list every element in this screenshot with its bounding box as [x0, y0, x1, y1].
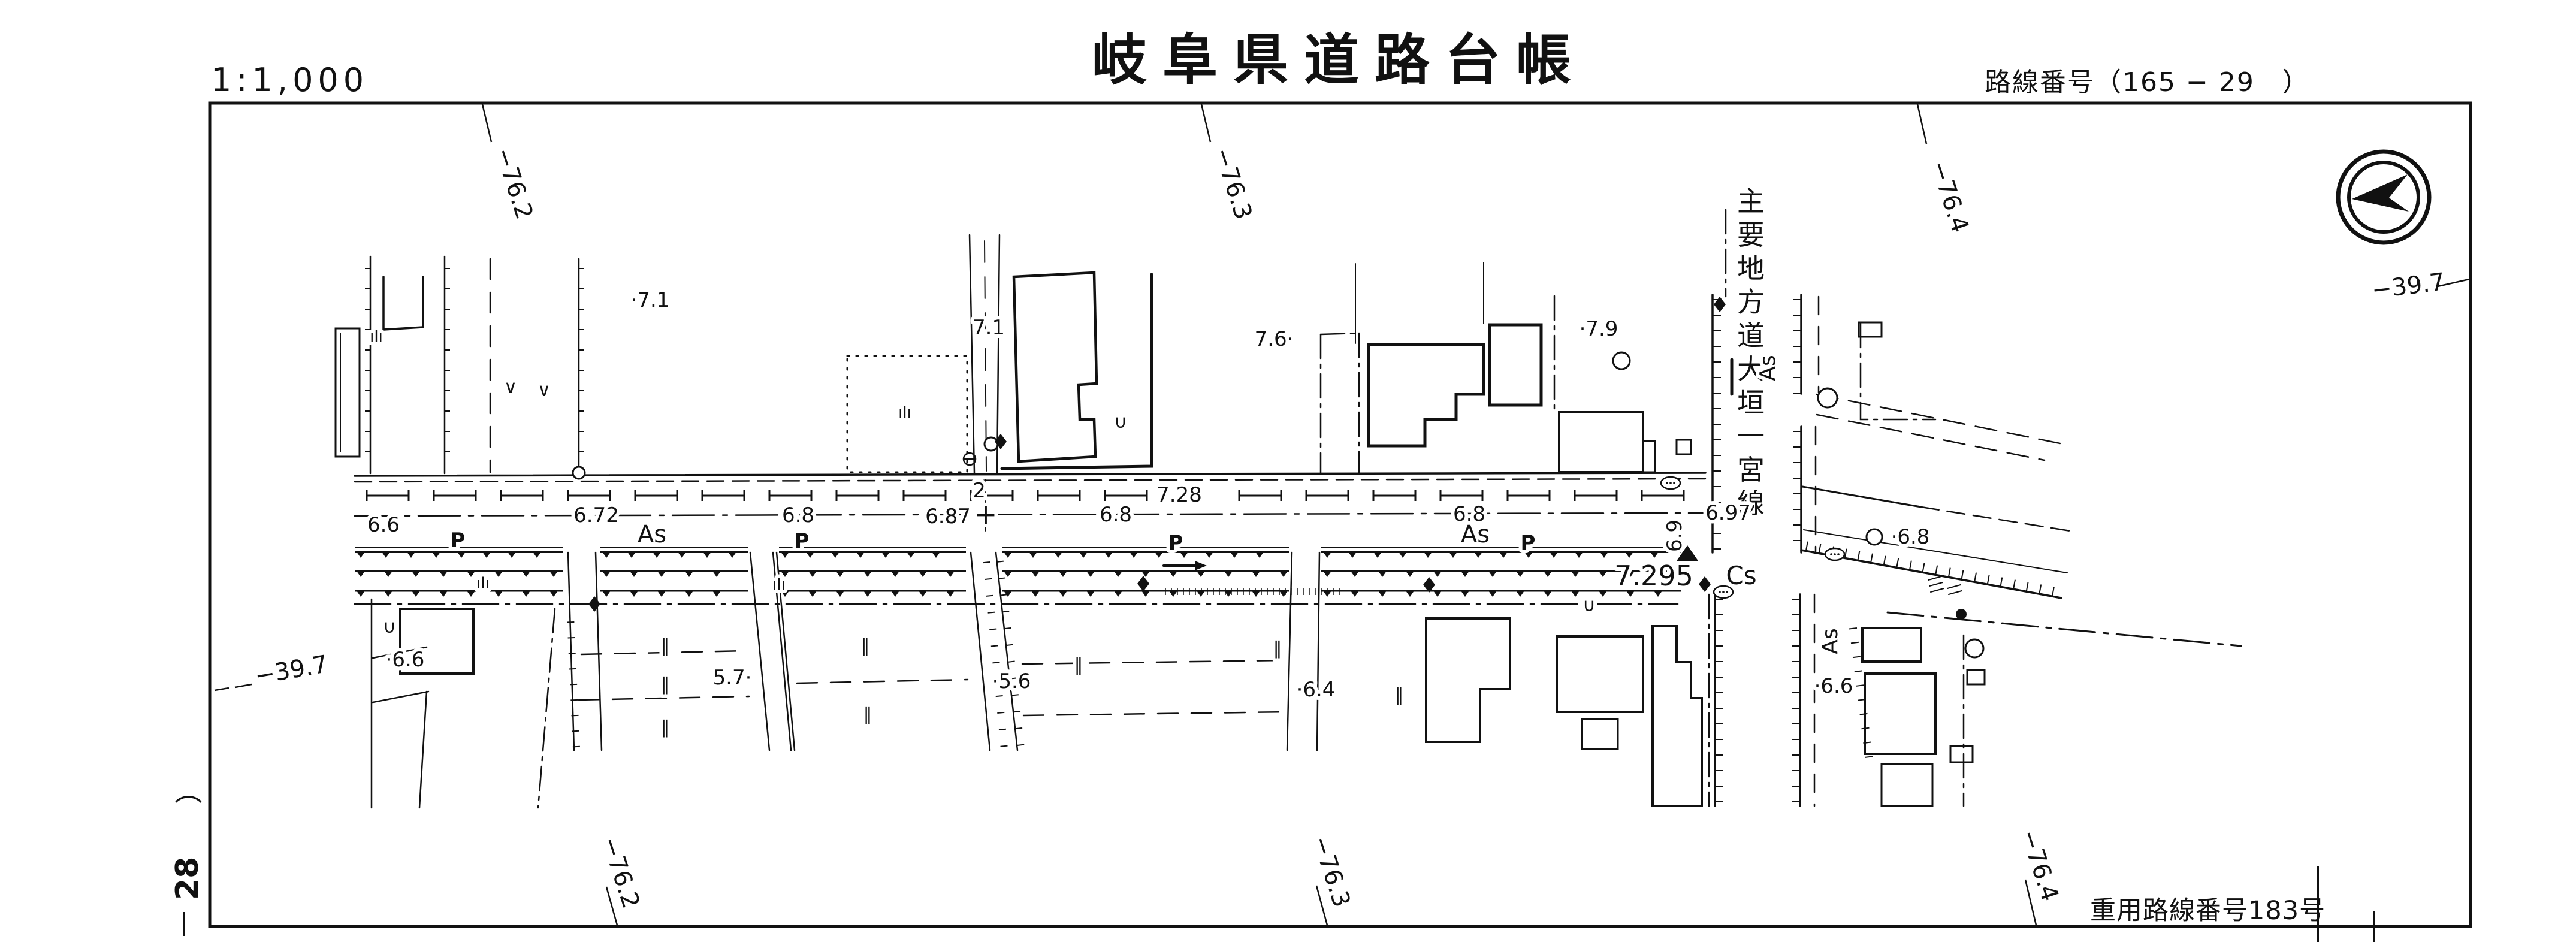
edge-tooth	[482, 552, 491, 558]
scale-label: 1:1,000	[211, 61, 369, 99]
edge-tooth	[919, 571, 927, 577]
edge-tooth	[1373, 552, 1382, 558]
map-annotation-label: 6.8	[1100, 503, 1132, 527]
map-canvas: 1:1,000 岐阜県道路台帳 路線番号（165 − 29 ） 重用路線番号18…	[0, 0, 2576, 942]
map-annotation-label: ılı	[476, 575, 490, 593]
hatch-tick	[1856, 685, 1864, 686]
hatch-tick	[1004, 628, 1011, 629]
edge-tooth	[1461, 571, 1469, 577]
edge-tooth	[1351, 591, 1359, 597]
hatch-tick	[1001, 746, 1008, 747]
map-annotation-label: ·6.6	[1814, 674, 1853, 698]
edge-tooth	[781, 552, 789, 558]
vertical-road-name: 主要地方道大垣一宮線	[1737, 185, 1765, 520]
hatch-tick	[1961, 570, 1963, 580]
edge-tooth	[1086, 591, 1095, 597]
edge-tooth	[407, 552, 415, 558]
map-annotation-label: Cs	[1726, 561, 1756, 590]
hatch-tick	[1855, 671, 1862, 672]
hatch-tick	[567, 622, 574, 623]
map-annotation-label: 6.9	[1663, 520, 1687, 552]
edge-tooth	[1378, 571, 1387, 577]
edge-tooth	[549, 591, 558, 597]
edge-tooth	[831, 552, 839, 558]
edge-tooth	[1059, 591, 1067, 597]
hatch-tick	[1000, 594, 1007, 595]
edge-tooth	[1114, 571, 1122, 577]
road-name-char: 方	[1737, 286, 1765, 318]
edge-tooth	[653, 552, 661, 558]
edge-tooth	[1252, 591, 1260, 597]
edge-tooth	[1169, 591, 1177, 597]
map-annotation-label: ∥	[1273, 638, 1282, 659]
edge-tooth	[1004, 552, 1012, 558]
map-annotation-label: 6.97	[1705, 501, 1751, 525]
hatch-tick	[573, 747, 580, 747]
edge-tooth	[1197, 571, 1205, 577]
streetlight-symbol	[1719, 591, 1721, 593]
diamond-symbol	[588, 596, 600, 612]
map-annotation-label: ∥	[1395, 685, 1404, 706]
edge-tooth	[946, 591, 955, 597]
streetlight-symbol	[1666, 482, 1668, 484]
edge-tooth	[382, 552, 390, 558]
edge-tooth	[1424, 552, 1432, 558]
edge-tooth	[357, 552, 365, 558]
edge-tooth	[836, 571, 844, 577]
circle-symbol	[1613, 352, 1630, 369]
map-annotation-label: ılı	[370, 328, 383, 346]
map-annotation-label: P	[795, 529, 810, 553]
edge-tooth	[1571, 571, 1580, 577]
hatch-tick	[1002, 611, 1009, 612]
edge-tooth	[1544, 591, 1552, 597]
edge-tooth	[357, 591, 365, 597]
edge-tooth	[881, 552, 890, 558]
hatch-tick	[1974, 573, 1976, 582]
map-annotation-label: As	[638, 521, 666, 548]
map-annotation-label: 7.28	[1156, 483, 1202, 507]
map-annotation-label: ∥	[661, 636, 670, 657]
edge-tooth	[1252, 571, 1260, 577]
edge-tooth	[602, 591, 611, 597]
hatch-tick	[1806, 542, 1808, 551]
hatch-tick	[572, 715, 579, 716]
edge-tooth	[657, 571, 666, 577]
edge-tooth	[712, 571, 721, 577]
edge-tooth	[1516, 591, 1524, 597]
edge-tooth	[1488, 591, 1497, 597]
edge-tooth	[1079, 552, 1088, 558]
hatch-tick	[988, 612, 995, 613]
edge-tooth	[685, 571, 693, 577]
edge-tooth	[728, 552, 736, 558]
hatch-tick	[2052, 587, 2054, 596]
edge-tooth	[1599, 591, 1607, 597]
map-annotation-label: ∨	[504, 377, 517, 398]
map-annotation-label: 7.1	[973, 316, 1005, 340]
hatch-tick	[2013, 580, 2015, 590]
hatch-tick	[569, 669, 576, 669]
hatch-tick	[569, 653, 576, 654]
hatch-tick	[1896, 558, 1898, 568]
road-name-char: 垣	[1737, 387, 1765, 419]
edge-tooth	[1086, 571, 1095, 577]
edge-tooth	[856, 552, 865, 558]
map-annotation-label: +	[974, 498, 998, 530]
map-annotation-label: ılı	[898, 404, 911, 422]
edge-tooth	[1550, 552, 1558, 558]
streetlight-symbol	[1726, 591, 1728, 593]
hatch-tick	[1819, 544, 1821, 554]
road-ledger-sheet: 1:1,000 岐阜県道路台帳 路線番号（165 − 29 ） 重用路線番号18…	[0, 0, 2576, 942]
map-annotation-label: ·6.4	[1297, 678, 1336, 702]
hatch-tick	[989, 629, 996, 629]
edge-tooth	[703, 552, 711, 558]
edge-tooth	[1348, 552, 1357, 558]
hatch-tick	[1988, 575, 1989, 585]
map-linework	[336, 210, 2241, 808]
hatch-tick	[1949, 568, 1950, 578]
edge-tooth	[1169, 571, 1177, 577]
grid-coordinate-labels: −76.2−76.3−76.4−76.2−76.3−76.4−39.7−39.7	[253, 144, 2447, 912]
map-annotation-label: ·6.8	[1891, 525, 1930, 549]
edge-tooth	[1544, 571, 1552, 577]
edge-tooth	[808, 591, 817, 597]
hatch-tick	[983, 562, 990, 563]
hatch-tick	[1008, 662, 1015, 662]
hatch-tick	[1853, 657, 1861, 658]
hatch-tick	[986, 596, 993, 596]
map-annotation-label: P	[1168, 531, 1183, 555]
edge-tooth	[384, 571, 392, 577]
circle-symbol	[573, 467, 585, 479]
edge-tooth	[1406, 591, 1414, 597]
grid-coordinate-label: −76.2	[489, 144, 538, 223]
map-annotation-label: ·7.1	[631, 288, 670, 312]
hatch-tick	[985, 579, 992, 579]
edge-tooth	[457, 552, 466, 558]
hatch-tick	[1865, 756, 1873, 757]
edge-tooth	[1197, 591, 1205, 597]
hatch-tick	[998, 578, 1005, 578]
edge-tooth	[1141, 591, 1150, 597]
circle-symbol	[1818, 388, 1837, 407]
edge-tooth	[357, 571, 365, 577]
edge-tooth	[836, 591, 844, 597]
streetlight-symbol	[1673, 482, 1675, 484]
hatch-tick	[1910, 561, 1911, 570]
grid-coordinate-label: −39.7	[253, 650, 330, 690]
streetlight-symbol	[1830, 553, 1832, 555]
edge-tooth	[522, 571, 530, 577]
hatch-tick	[996, 696, 1003, 696]
edge-tooth	[1499, 552, 1508, 558]
edge-tooth	[439, 571, 448, 577]
edge-tooth	[494, 571, 503, 577]
hatch-tick	[992, 662, 999, 663]
hatch-tick	[1011, 695, 1019, 695]
hatch-tick	[1849, 628, 1857, 629]
map-annotation-label: 5.7·	[713, 666, 752, 690]
hatch-tick	[2039, 585, 2041, 594]
edge-tooth	[1104, 552, 1113, 558]
hatch-tick	[1884, 556, 1886, 566]
map-annotation-label: ∥	[661, 674, 670, 695]
edge-tooth	[549, 571, 558, 577]
edge-tooth	[1399, 552, 1407, 558]
edge-tooth	[1031, 591, 1040, 597]
map-annotation-label: ∥	[861, 636, 870, 657]
hatch-tick	[1862, 728, 1870, 729]
edge-tooth	[1433, 571, 1442, 577]
hatch-tick	[1860, 714, 1868, 715]
route-number-label: 路線番号（165 − 29 ）	[1985, 67, 2310, 98]
edge-tooth	[907, 552, 915, 558]
edge-tooth	[1054, 552, 1062, 558]
grid-coordinate-label: −76.4	[2015, 826, 2064, 905]
map-annotation-label: ·7.9	[1580, 317, 1618, 341]
edge-tooth	[1031, 571, 1040, 577]
edge-tooth	[533, 552, 541, 558]
edge-tooth	[412, 591, 420, 597]
streetlight-symbol	[1669, 482, 1672, 484]
edge-tooth	[1279, 571, 1288, 577]
edge-tooth	[1378, 591, 1387, 597]
road-name-char: 地	[1737, 252, 1765, 285]
edge-tooth	[494, 591, 503, 597]
hatch-tick	[1015, 728, 1022, 729]
map-annotation-label: 6.87	[925, 505, 971, 529]
sheet-number: 28	[170, 857, 206, 900]
edge-tooth	[630, 571, 638, 577]
edge-tooth	[467, 591, 475, 597]
grid-coordinate-label: −76.4	[1925, 158, 1974, 236]
map-annotation-label: ∨	[537, 380, 551, 401]
diamond-symbol	[1699, 576, 1711, 592]
edge-tooth	[863, 571, 872, 577]
edge-tooth	[1004, 591, 1012, 597]
edge-tooth	[1004, 571, 1012, 577]
edge-tooth	[1230, 552, 1239, 558]
edge-tooth	[1650, 552, 1659, 558]
edge-tooth	[891, 571, 899, 577]
hatch-tick	[572, 731, 579, 732]
edge-tooth	[919, 591, 927, 597]
edge-tooth	[508, 552, 516, 558]
page-title: 岐阜県道路台帳	[1092, 28, 1587, 92]
edge-tooth	[522, 591, 530, 597]
map-annotation-label: As	[1818, 628, 1843, 654]
hatch-tick	[999, 729, 1006, 730]
edge-tooth	[1600, 552, 1608, 558]
edge-tooth	[1351, 571, 1359, 577]
edge-tooth	[1141, 571, 1150, 577]
edge-tooth	[1516, 571, 1524, 577]
streetlight-symbol	[1722, 591, 1725, 593]
map-annotation-label: ∪	[1583, 595, 1596, 616]
diamond-symbol	[1137, 576, 1149, 591]
map-annotation-label: P	[1521, 531, 1536, 555]
map-annotation-label: P	[451, 529, 466, 552]
edge-tooth	[1449, 552, 1457, 558]
edge-tooth	[932, 552, 940, 558]
map-annotation-label: 6.72	[573, 503, 619, 527]
map-annotation-label: 7.295	[1614, 560, 1693, 592]
edge-tooth	[627, 552, 636, 558]
map-annotation-label: ∥	[1074, 655, 1083, 676]
map-annotation-label: ∪	[383, 617, 396, 638]
edge-tooth	[1155, 552, 1163, 558]
edge-tooth	[1488, 571, 1497, 577]
edge-tooth	[412, 571, 420, 577]
hatch-tick	[2027, 582, 2028, 592]
hatch-tick	[991, 645, 998, 646]
streetlight-symbol	[1837, 553, 1840, 555]
edge-tooth	[1625, 552, 1633, 558]
hatch-tick	[1006, 645, 1013, 645]
hatch-tick	[1013, 711, 1020, 712]
map-annotation-label: ∥	[661, 717, 670, 738]
edge-tooth	[678, 552, 686, 558]
streetlight-symbol	[1834, 553, 1836, 555]
edge-tooth	[432, 552, 440, 558]
map-annotation-label: ∪	[1114, 412, 1127, 433]
edge-tooth	[467, 571, 475, 577]
hatch-tick	[1851, 642, 1859, 644]
map-annotation-label: 7.6·	[1255, 327, 1294, 351]
grid-coordinate-label: −39.7	[2370, 268, 2447, 304]
edge-tooth	[1571, 591, 1580, 597]
hatch-tick	[1858, 551, 1859, 561]
grid-coordinate-label: −76.3	[1208, 144, 1257, 223]
hatch-tick	[570, 700, 578, 701]
hatch-tick	[2000, 578, 2002, 587]
dot-symbol	[1956, 609, 1967, 620]
edge-tooth	[1114, 591, 1122, 597]
edge-tooth	[630, 591, 638, 597]
edge-tooth	[1224, 571, 1233, 577]
road-name-char: 主	[1737, 185, 1765, 218]
map-annotation-label: ılı	[772, 576, 786, 594]
grid-leaders	[215, 104, 2469, 925]
map-annotation-label: As	[1756, 355, 1780, 381]
edge-tooth	[1130, 552, 1138, 558]
edge-tooth	[1461, 591, 1469, 597]
hatch-tick	[997, 712, 1004, 713]
grid-coordinate-label: −76.3	[1306, 832, 1355, 911]
edge-tooth	[1323, 552, 1331, 558]
circle-symbol	[1965, 639, 1983, 657]
edge-tooth	[685, 591, 693, 597]
edge-tooth	[1323, 571, 1331, 577]
road-name-char: 道	[1737, 319, 1765, 352]
hatch-tick	[996, 561, 1004, 562]
north-arrow-icon	[2338, 152, 2429, 243]
map-annotation-label: ∥	[863, 704, 872, 725]
map-annotation-label: 6.8	[782, 503, 814, 527]
edge-tooth	[1255, 552, 1264, 558]
edge-tooth	[602, 552, 611, 558]
edge-tooth	[1575, 552, 1583, 558]
edge-tooth	[712, 591, 721, 597]
circle-symbol	[985, 437, 998, 451]
edge-tooth	[808, 571, 817, 577]
edge-tooth	[1406, 571, 1414, 577]
map-annotation-label: 6.6	[367, 513, 400, 537]
map-annotation-label: As	[1461, 521, 1490, 548]
edge-tooth	[1279, 591, 1288, 597]
edge-tooth	[946, 571, 955, 577]
road-name-char: 要	[1737, 219, 1765, 251]
hatch-tick	[1845, 549, 1847, 558]
hatch-tick	[1017, 745, 1024, 745]
map-annotation-label: ·6.6	[386, 648, 425, 672]
road-name-char: 一	[1737, 420, 1765, 452]
edge-tooth	[439, 591, 448, 597]
map-frame	[210, 103, 2471, 926]
edge-tooth	[384, 591, 392, 597]
road-name-char: 宮	[1737, 454, 1765, 486]
edge-tooth	[602, 571, 611, 577]
edge-tooth	[891, 591, 899, 597]
hatch-tick	[1871, 554, 1873, 563]
edge-tooth	[1059, 571, 1067, 577]
edge-tooth	[1029, 552, 1037, 558]
diamond-symbol	[1714, 297, 1726, 312]
edge-tooth	[1205, 552, 1213, 558]
hatch-tick	[568, 638, 575, 638]
edge-tooth	[1599, 571, 1607, 577]
sheet-bracket: ）	[173, 777, 206, 804]
edge-tooth	[657, 591, 666, 597]
duplicate-route-label: 重用路線番号183号	[2090, 896, 2326, 926]
hatch-tick	[570, 684, 577, 685]
grid-coordinate-label: −76.2	[596, 834, 645, 912]
edge-tooth	[1474, 552, 1482, 558]
circle-symbol	[1867, 529, 1882, 545]
hatch-tick	[1923, 563, 1925, 573]
map-annotation-label: ·5.6	[992, 669, 1031, 693]
hatch-tick	[1935, 566, 1937, 575]
edge-tooth	[1433, 591, 1442, 597]
edge-tooth	[863, 591, 872, 597]
